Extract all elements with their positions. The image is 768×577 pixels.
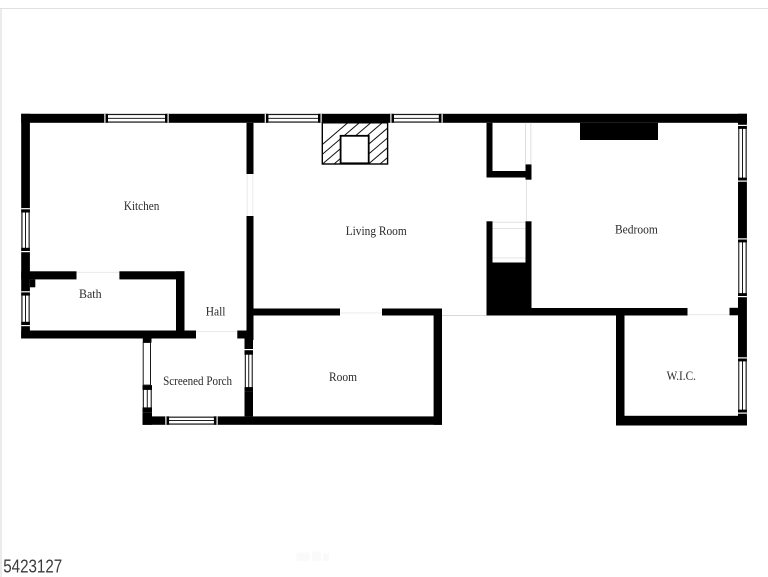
svg-text:W.I.C.: W.I.C. xyxy=(667,369,696,383)
svg-text:Screened Porch: Screened Porch xyxy=(163,374,232,388)
svg-text:Living Room: Living Room xyxy=(346,224,407,238)
svg-text:5423127: 5423127 xyxy=(3,556,62,577)
svg-text:Kitchen: Kitchen xyxy=(124,199,160,213)
svg-text:Bath: Bath xyxy=(79,287,102,301)
svg-text:Bedroom: Bedroom xyxy=(615,223,658,237)
svg-text:Room: Room xyxy=(329,370,357,384)
svg-text:Hall: Hall xyxy=(206,305,226,319)
